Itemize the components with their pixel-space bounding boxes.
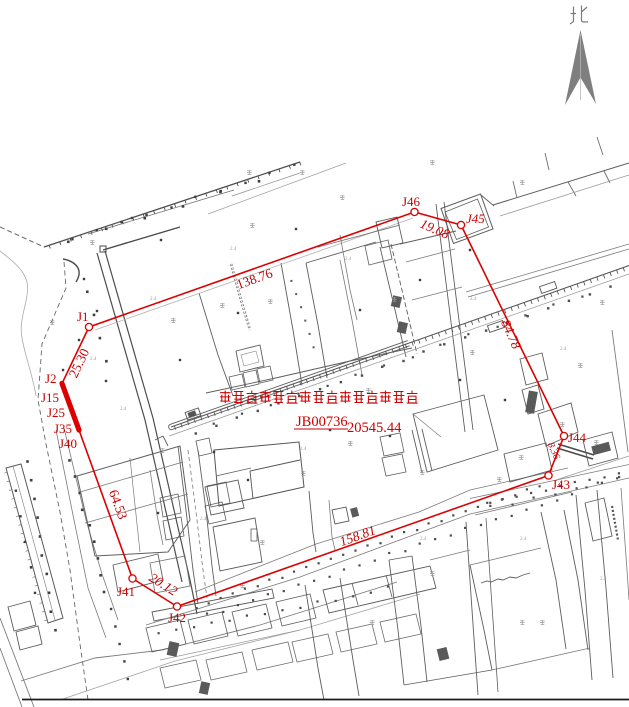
svg-text:J25: J25 [47,405,65,420]
svg-text:2.4: 2.4 [90,357,97,362]
svg-text:2.4: 2.4 [560,347,567,352]
svg-text:J44: J44 [568,430,587,445]
svg-text:J35: J35 [54,421,72,436]
svg-text:2.4: 2.4 [600,577,607,582]
svg-text:J2: J2 [45,371,57,386]
svg-text:2.4: 2.4 [520,537,527,542]
svg-text:2.4: 2.4 [470,297,477,302]
svg-text:J45: J45 [466,211,485,226]
svg-text:J46: J46 [402,194,421,209]
svg-text:2.4: 2.4 [200,517,207,522]
svg-text:J1: J1 [77,309,89,324]
svg-text:2.4: 2.4 [420,537,427,542]
svg-text:2.4: 2.4 [300,447,307,452]
svg-text:2.4: 2.4 [150,297,157,302]
svg-text:2.4: 2.4 [345,257,352,262]
svg-text:J41: J41 [117,584,135,599]
svg-text:20545.44: 20545.44 [347,420,402,436]
svg-text:J15: J15 [41,390,59,405]
svg-text:J40: J40 [59,436,77,451]
svg-text:2.4: 2.4 [230,247,237,252]
svg-text:2.4: 2.4 [120,407,127,412]
svg-text:J43: J43 [552,477,570,492]
svg-text:J42: J42 [168,610,186,625]
svg-text:JB00736: JB00736 [296,414,348,430]
